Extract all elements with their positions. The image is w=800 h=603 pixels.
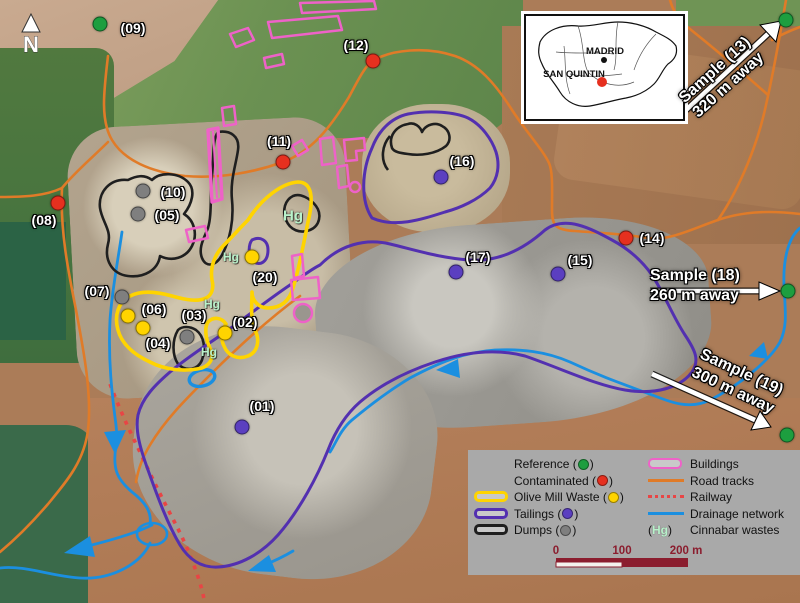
sample-point-label-05: (05) bbox=[155, 207, 180, 223]
legend-dot-dumps_dot bbox=[560, 525, 571, 536]
hg-label-1: Hg bbox=[223, 250, 239, 264]
sample-point-11[interactable] bbox=[276, 155, 291, 170]
legend-item-buildings: Buildings bbox=[690, 456, 739, 472]
sample-point-05[interactable] bbox=[131, 207, 146, 222]
legend-hg-glyph: (Hg) bbox=[648, 522, 672, 538]
sample-point-label-01: (01) bbox=[250, 398, 275, 414]
sample-point-label-20: (20) bbox=[253, 269, 278, 285]
legend-item-drainage-network: Drainage network bbox=[690, 506, 784, 522]
sample-point-label-16: (16) bbox=[450, 153, 475, 169]
legend-item-tailings: Tailings () bbox=[514, 506, 578, 522]
legend-item-contaminated: Contaminated () bbox=[514, 473, 613, 489]
legend-line-road-tracks bbox=[648, 479, 684, 482]
legend-swatch-buildings bbox=[648, 458, 682, 469]
legend-swatch-olive_mill bbox=[474, 491, 508, 502]
iberia-outline bbox=[539, 22, 677, 106]
sample-point-label-11: (11) bbox=[267, 133, 291, 149]
sample-point-label-04: (04) bbox=[146, 335, 171, 351]
sample-point-10[interactable] bbox=[136, 184, 151, 199]
sample-point-01[interactable] bbox=[235, 420, 250, 435]
legend: Reference ()Contaminated ()Olive Mill Wa… bbox=[468, 450, 800, 575]
sample-point-label-10: (10) bbox=[161, 184, 186, 200]
sample-point-03[interactable] bbox=[180, 330, 195, 345]
sample-point-04[interactable] bbox=[136, 321, 151, 336]
sample-point-label-02: (02) bbox=[233, 314, 258, 330]
sample-point-13[interactable] bbox=[779, 13, 794, 28]
sample-point-label-14: (14) bbox=[640, 230, 665, 246]
sample-point-15[interactable] bbox=[551, 267, 566, 282]
legend-dot-tailings_dot bbox=[562, 508, 573, 519]
sample-point-18[interactable] bbox=[781, 284, 796, 299]
sample-point-16[interactable] bbox=[434, 170, 449, 185]
sample-point-label-08: (08) bbox=[32, 212, 57, 228]
legend-dot-contaminated bbox=[597, 475, 608, 486]
legend-swatch-tailings_outline bbox=[474, 508, 508, 519]
sample-point-08[interactable] bbox=[51, 196, 66, 211]
hg-label-3: Hg bbox=[201, 345, 217, 359]
svg-text:200 m: 200 m bbox=[670, 545, 703, 557]
sample-point-07[interactable] bbox=[115, 290, 130, 305]
legend-item-railway: Railway bbox=[690, 489, 732, 505]
svg-text:100: 100 bbox=[612, 545, 631, 557]
sample-point-label-09: (09) bbox=[121, 20, 146, 36]
sample-point-19[interactable] bbox=[780, 428, 795, 443]
legend-item-reference: Reference () bbox=[514, 456, 594, 472]
legend-dot-reference bbox=[578, 459, 589, 470]
sample-point-label-17: (17) bbox=[466, 249, 491, 265]
sample-point-14[interactable] bbox=[619, 231, 634, 246]
bg-tailings-16 bbox=[362, 104, 510, 232]
sample-point-20[interactable] bbox=[245, 250, 260, 265]
legend-item-road-tracks: Road tracks bbox=[690, 473, 754, 489]
legend-dot-olive_mill bbox=[608, 492, 619, 503]
legend-swatch-dumps_outline bbox=[474, 524, 508, 535]
sample-point-06[interactable] bbox=[121, 309, 136, 324]
legend-item-dumps: Dumps () bbox=[514, 522, 576, 538]
sample-point-label-07: (07) bbox=[85, 283, 110, 299]
hg-label-0: Hg bbox=[283, 208, 303, 225]
scale-bar: 0 100 200 m bbox=[540, 543, 720, 573]
legend-line-drainage-network bbox=[648, 512, 684, 515]
legend-item-cinnabar-wastes: Cinnabar wastes bbox=[690, 522, 779, 538]
madrid-dot bbox=[601, 57, 607, 63]
madrid-label: MADRID bbox=[586, 46, 624, 57]
svg-text:0: 0 bbox=[553, 545, 559, 557]
sample-point-label-12: (12) bbox=[344, 37, 369, 53]
sample-point-09[interactable] bbox=[93, 17, 108, 32]
legend-line-railway bbox=[648, 495, 684, 498]
map-figure: N MADRID SAN QUINTIN Sample (13)320 m aw… bbox=[0, 0, 800, 603]
inset-map-svg: MADRID SAN QUINTIN bbox=[526, 16, 683, 119]
legend-item-olive-mill-waste: Olive Mill Waste () bbox=[514, 489, 624, 505]
bg-field-west-dark bbox=[0, 222, 66, 340]
san-quintin-label: SAN QUINTIN bbox=[543, 69, 605, 80]
sample-point-label-03: (03) bbox=[182, 307, 207, 323]
sample-point-12[interactable] bbox=[366, 54, 381, 69]
sample-point-label-06: (06) bbox=[142, 301, 167, 317]
sample-point-17[interactable] bbox=[449, 265, 464, 280]
sample-point-02[interactable] bbox=[218, 326, 233, 341]
bg-field-southwest bbox=[0, 425, 96, 603]
sample-point-label-15: (15) bbox=[568, 252, 593, 268]
sample-18-arrow-text: Sample (18)260 m away bbox=[650, 266, 740, 306]
